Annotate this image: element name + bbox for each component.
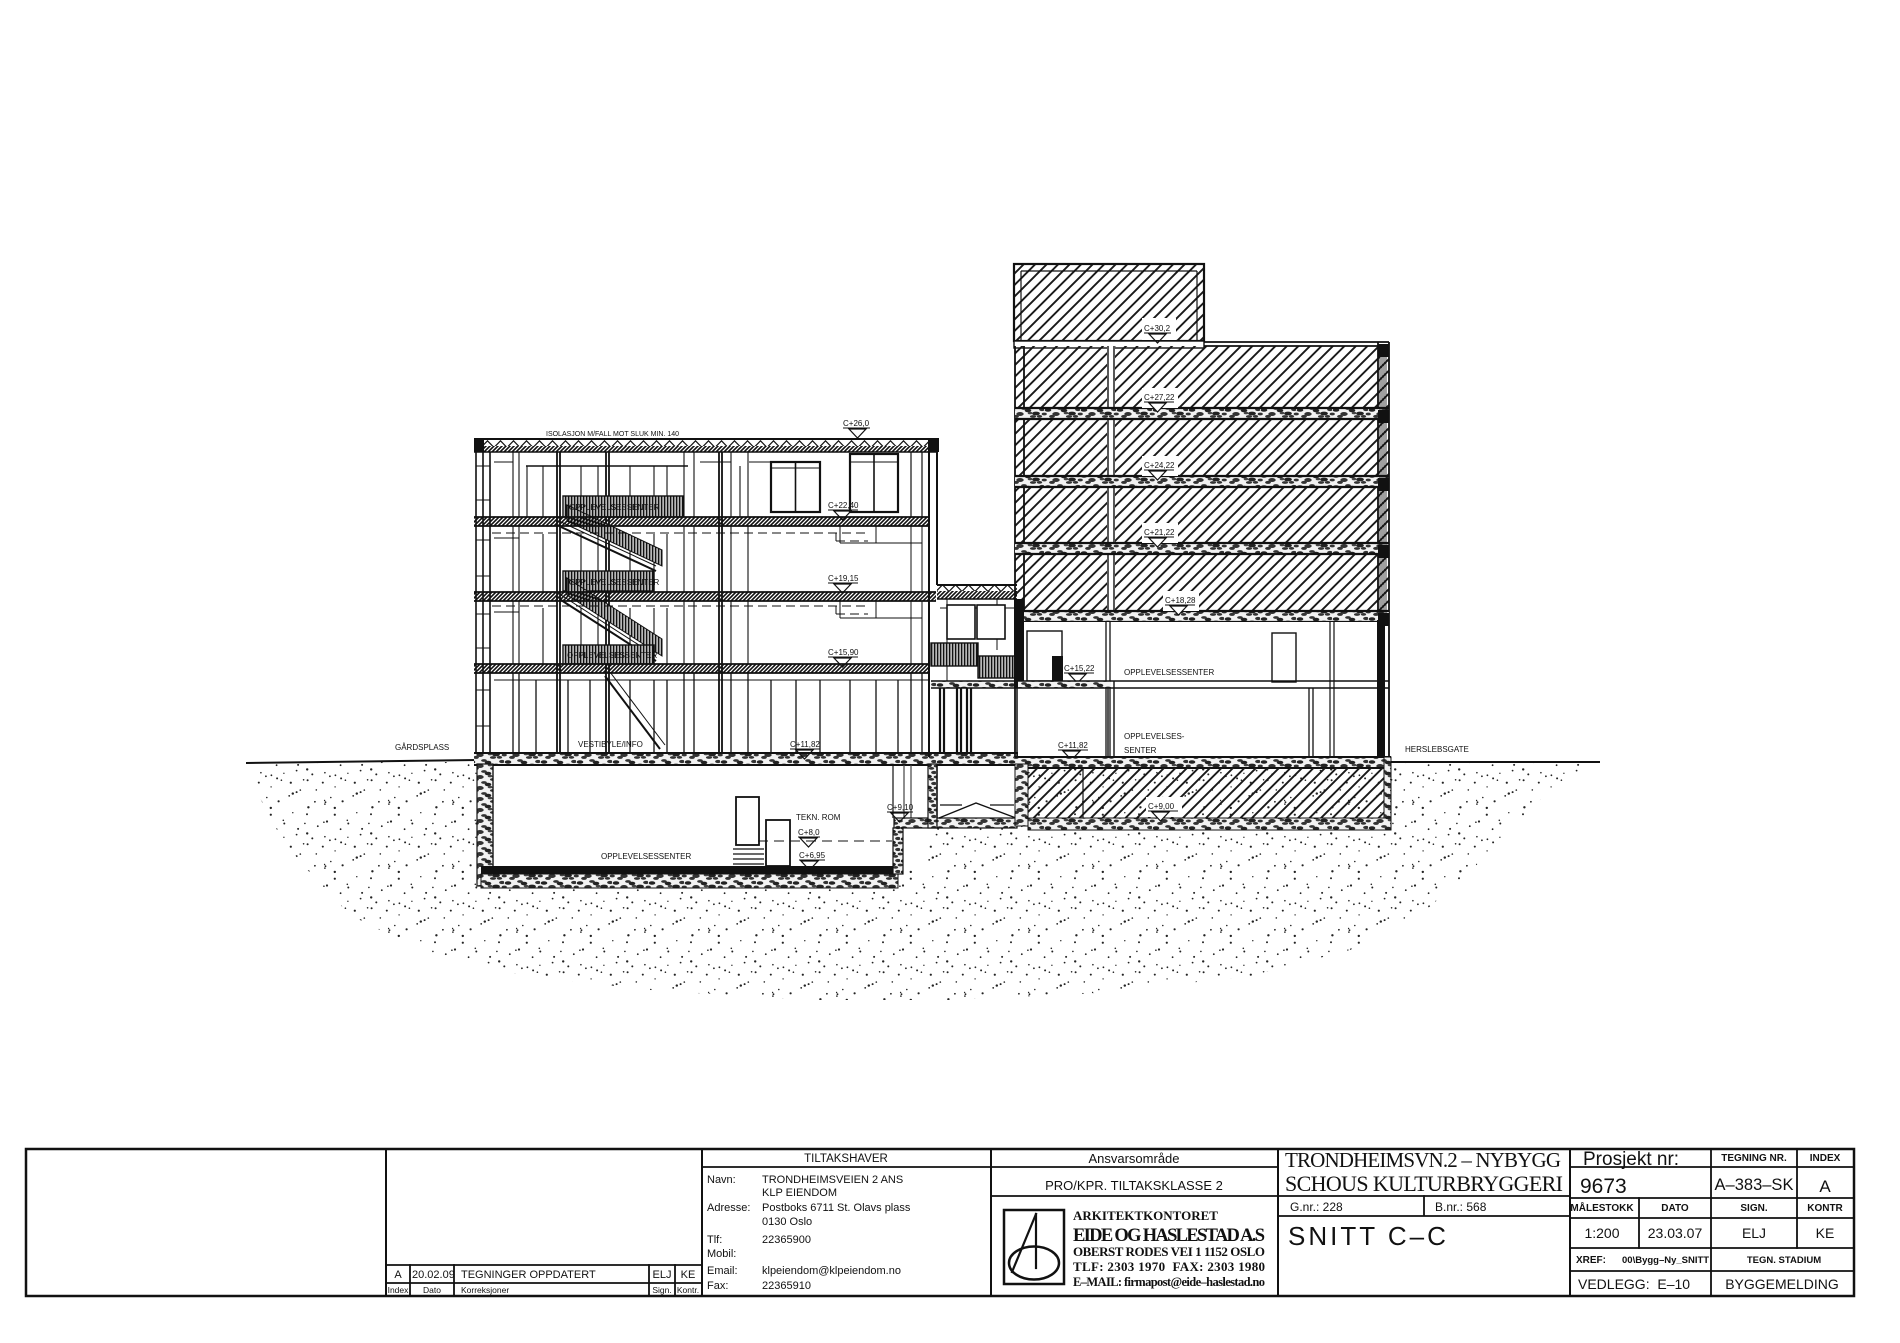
svg-text:C+15,22: C+15,22 <box>1064 664 1095 673</box>
svg-text:A: A <box>394 1269 402 1281</box>
svg-text:TRONDHEIMSVEIEN 2 ANS: TRONDHEIMSVEIEN 2 ANS <box>762 1174 903 1186</box>
svg-text:SENTER: SENTER <box>1124 746 1157 755</box>
svg-text:Korreksjoner: Korreksjoner <box>461 1285 509 1295</box>
svg-text:INDEX: INDEX <box>1810 1153 1841 1164</box>
svg-text:OPPLEVELSESSENTER: OPPLEVELSESSENTER <box>1124 668 1214 677</box>
svg-text:Fax:: Fax: <box>707 1280 728 1292</box>
svg-text:Tlf:: Tlf: <box>707 1234 722 1246</box>
svg-text:A–383–SK: A–383–SK <box>1715 1176 1794 1194</box>
svg-text:Index: Index <box>388 1285 410 1295</box>
svg-text:C+26,0: C+26,0 <box>843 419 870 428</box>
svg-text:SIGN.: SIGN. <box>1740 1203 1767 1214</box>
svg-text:C+22,40: C+22,40 <box>828 501 859 510</box>
svg-text:C+18,28: C+18,28 <box>1165 596 1196 605</box>
svg-text:KE: KE <box>1816 1225 1835 1241</box>
svg-text:G.nr.: 228: G.nr.: 228 <box>1290 1200 1343 1214</box>
svg-text:XREF:: XREF: <box>1576 1255 1606 1266</box>
svg-text:GÅRDSPLASS: GÅRDSPLASS <box>395 743 449 752</box>
svg-text:OPPLEVELSESSENTER: OPPLEVELSESSENTER <box>601 852 691 861</box>
svg-text:22365900: 22365900 <box>762 1234 811 1246</box>
svg-text:C+9,00: C+9,00 <box>1148 802 1175 811</box>
svg-text:KONTR: KONTR <box>1807 1203 1843 1214</box>
svg-text:TEKN. ROM: TEKN. ROM <box>796 813 841 822</box>
svg-text:KLP EIENDOM: KLP EIENDOM <box>762 1187 837 1199</box>
svg-text:Dato: Dato <box>423 1285 441 1295</box>
svg-text:C+15,90: C+15,90 <box>828 648 859 657</box>
svg-text:C+8,0: C+8,0 <box>798 828 820 837</box>
svg-text:Mobil:: Mobil: <box>707 1248 736 1260</box>
svg-text:C+11,82: C+11,82 <box>790 740 820 749</box>
svg-text:0130 Oslo: 0130 Oslo <box>762 1216 812 1228</box>
svg-text:Postboks 6711 St. Olavs plass: Postboks 6711 St. Olavs plass <box>762 1202 911 1214</box>
svg-text:C+9,10: C+9,10 <box>887 803 914 812</box>
svg-text:22365910: 22365910 <box>762 1280 811 1292</box>
svg-text:ELJ: ELJ <box>653 1269 672 1281</box>
svg-text:VESTIBYLE/INFO: VESTIBYLE/INFO <box>578 740 643 749</box>
svg-text:Adresse:: Adresse: <box>707 1202 750 1214</box>
svg-text:SCHOUS KULTURBRYGGERI: SCHOUS KULTURBRYGGERI <box>1285 1171 1563 1196</box>
svg-text:1:200: 1:200 <box>1584 1225 1619 1241</box>
svg-text:C+21,22: C+21,22 <box>1144 528 1175 537</box>
svg-text:20.02.09: 20.02.09 <box>412 1269 455 1281</box>
svg-text:HERSLEBSGATE: HERSLEBSGATE <box>1405 745 1469 754</box>
svg-text:EIDE OG HASLESTAD A.S: EIDE OG HASLESTAD A.S <box>1073 1226 1265 1246</box>
svg-text:ISOLASJON M/FALL MOT SLUK MIN.: ISOLASJON M/FALL MOT SLUK MIN. 140 <box>546 431 679 438</box>
svg-text:TEGN. STADIUM: TEGN. STADIUM <box>1747 1255 1821 1266</box>
svg-text:Navn:: Navn: <box>707 1174 736 1186</box>
svg-text:Email:: Email: <box>707 1265 738 1277</box>
svg-text:B.nr.: 568: B.nr.: 568 <box>1435 1200 1487 1214</box>
svg-text:TLF: 2303 1970 FAX: 2303 1980: TLF: 2303 1970 FAX: 2303 1980 <box>1073 1259 1265 1274</box>
svg-text:OPPLEVELSESSENTER: OPPLEVELSESSENTER <box>569 503 659 512</box>
svg-text:BYGGEMELDING: BYGGEMELDING <box>1725 1276 1839 1292</box>
svg-text:00\Bygg–Ny_SNITT: 00\Bygg–Ny_SNITT <box>1622 1255 1709 1266</box>
svg-text:9673: 9673 <box>1580 1175 1627 1198</box>
svg-text:OPPLEVELSESSENTER: OPPLEVELSESSENTER <box>569 578 659 587</box>
svg-text:OPPLEVELSESSENTER: OPPLEVELSESSENTER <box>567 651 657 660</box>
svg-text:KE: KE <box>681 1269 696 1281</box>
svg-text:VEDLEGG: E–10: VEDLEGG: E–10 <box>1578 1276 1690 1292</box>
svg-text:C+24,22: C+24,22 <box>1144 461 1175 470</box>
svg-text:ARKITEKTKONTORET: ARKITEKTKONTORET <box>1073 1208 1218 1223</box>
svg-text:E–MAIL: firmapost@eide–haslest: E–MAIL: firmapost@eide–haslestad.no <box>1073 1275 1265 1289</box>
svg-text:C+6,95: C+6,95 <box>799 851 826 860</box>
svg-text:C+19,15: C+19,15 <box>828 574 859 583</box>
svg-text:23.03.07: 23.03.07 <box>1648 1225 1703 1241</box>
svg-text:OBERST RODES VEI 1 1152 OSLO: OBERST RODES VEI 1 1152 OSLO <box>1073 1244 1265 1259</box>
svg-text:Sign.: Sign. <box>652 1285 671 1295</box>
svg-text:TILTAKSHAVER: TILTAKSHAVER <box>804 1153 888 1165</box>
svg-text:PRO/KPR. TILTAKSKLASSE 2: PRO/KPR. TILTAKSKLASSE 2 <box>1045 1178 1223 1193</box>
svg-text:ELJ: ELJ <box>1742 1225 1766 1241</box>
svg-text:C+30,2: C+30,2 <box>1144 324 1171 333</box>
svg-text:Ansvarsområde: Ansvarsområde <box>1088 1151 1179 1166</box>
svg-text:TEGNING NR.: TEGNING NR. <box>1721 1153 1787 1164</box>
svg-text:C+27,22: C+27,22 <box>1144 393 1175 402</box>
svg-text:SNITT C–C: SNITT C–C <box>1288 1221 1449 1251</box>
svg-text:Kontr.: Kontr. <box>677 1285 699 1295</box>
svg-text:A: A <box>1819 1177 1831 1196</box>
svg-text:OPPLEVELSES-: OPPLEVELSES- <box>1124 732 1185 741</box>
svg-text:MÅLESTOKK: MÅLESTOKK <box>1570 1201 1634 1214</box>
svg-text:TEGNINGER OPPDATERT: TEGNINGER OPPDATERT <box>461 1269 596 1281</box>
svg-text:klpeiendom@klpeiendom.no: klpeiendom@klpeiendom.no <box>762 1265 901 1277</box>
svg-text:C+11,82: C+11,82 <box>1058 741 1088 750</box>
svg-text:TRONDHEIMSVN.2 – NYBYGG: TRONDHEIMSVN.2 – NYBYGG <box>1285 1148 1561 1172</box>
svg-text:DATO: DATO <box>1661 1203 1689 1214</box>
